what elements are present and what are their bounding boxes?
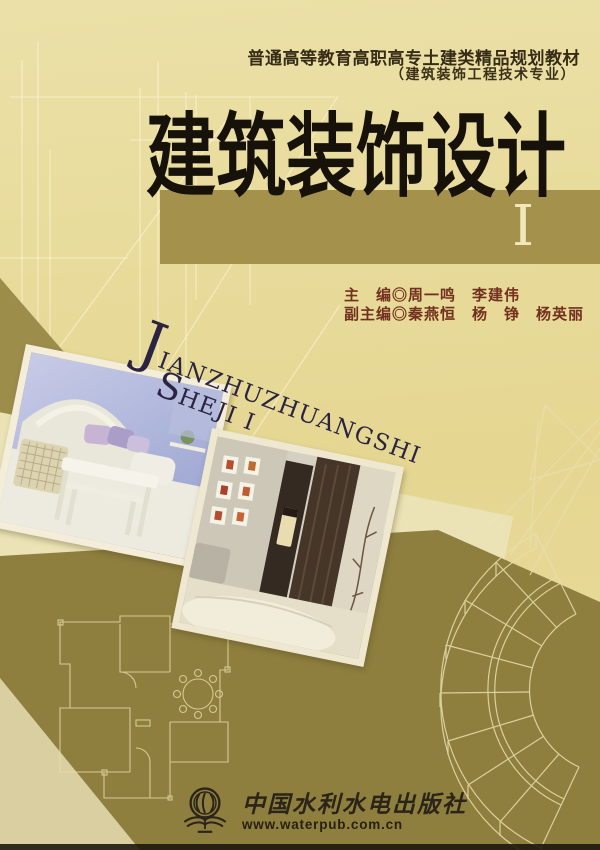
- book-cover: I: [0, 0, 600, 850]
- publisher-block: 中国水利水电出版社 www.waterpub.com.cn: [178, 784, 467, 840]
- series-subtitle: （建筑装饰工程技术专业）: [390, 64, 576, 84]
- book-title: 建筑装饰设计: [146, 84, 566, 215]
- publisher-text: 中国水利水电出版社 www.waterpub.com.cn: [242, 792, 467, 832]
- scan-edge-shadow: [0, 844, 600, 850]
- publisher-logo-icon: [178, 784, 232, 840]
- chief-editors-line: 主 编◎周一鸣 李建伟: [344, 284, 520, 305]
- deputy-editors-line: 副主编◎秦燕恒 杨 铮 杨英丽: [344, 303, 584, 324]
- publisher-name: 中国水利水电出版社: [242, 792, 467, 817]
- floor-plan-drawing: [50, 612, 240, 807]
- publisher-website: www.waterpub.com.cn: [242, 817, 467, 832]
